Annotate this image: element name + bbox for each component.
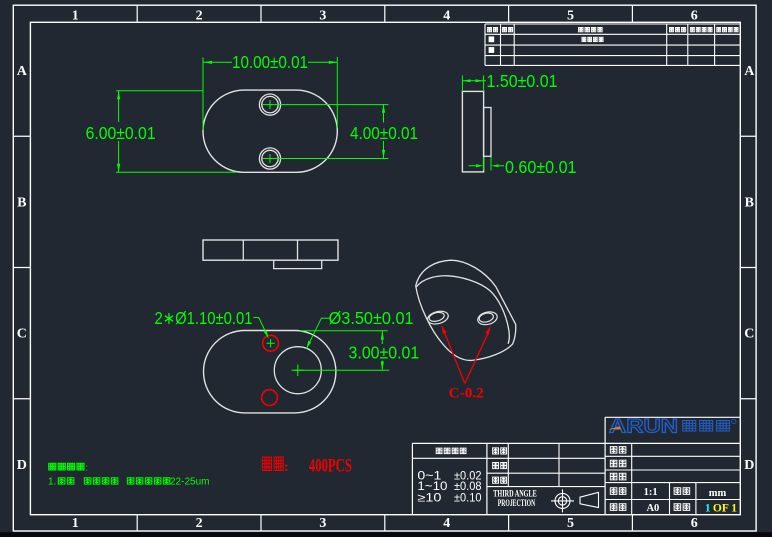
svg-text:C-0.2: C-0.2	[449, 385, 484, 401]
svg-text:1.: 1.	[48, 477, 56, 488]
svg-text:1: 1	[705, 503, 711, 515]
svg-text:6.00±0.01: 6.00±0.01	[86, 123, 156, 143]
svg-text:4: 4	[443, 8, 450, 23]
svg-text:Ø3.50±0.01: Ø3.50±0.01	[329, 308, 414, 328]
svg-text:D: D	[17, 458, 27, 473]
svg-text:mm: mm	[709, 488, 727, 499]
svg-text:A0: A0	[646, 503, 659, 514]
svg-text:2: 2	[196, 516, 203, 531]
svg-text:3: 3	[319, 516, 326, 531]
svg-text:1:1: 1:1	[644, 487, 658, 498]
svg-text:1~10: 1~10	[417, 481, 447, 493]
svg-text:PROJECTION: PROJECTION	[498, 498, 536, 508]
svg-text::: :	[284, 460, 289, 475]
svg-text:D: D	[744, 458, 754, 473]
svg-text:1: 1	[72, 516, 79, 531]
svg-text:2∗Ø1.10±0.01: 2∗Ø1.10±0.01	[155, 308, 253, 328]
svg-text::: :	[86, 463, 89, 473]
svg-text:B: B	[745, 196, 754, 211]
svg-text:4.00±0.01: 4.00±0.01	[350, 123, 418, 143]
svg-text:22-25um: 22-25um	[170, 477, 209, 488]
svg-text:THIRD ANGLE: THIRD ANGLE	[493, 488, 537, 498]
svg-text:3.00±0.01: 3.00±0.01	[349, 342, 420, 362]
svg-text:±0.08: ±0.08	[454, 481, 482, 493]
svg-text:ARUN: ARUN	[609, 416, 678, 438]
svg-text:6: 6	[691, 8, 698, 23]
svg-text:OF 1: OF 1	[713, 503, 737, 515]
svg-text:1: 1	[72, 8, 79, 23]
svg-text:400PCS: 400PCS	[309, 455, 352, 476]
svg-text:5: 5	[567, 516, 574, 531]
svg-text:6: 6	[691, 516, 698, 531]
svg-text:5: 5	[567, 8, 574, 23]
svg-text:≥10: ≥10	[417, 492, 441, 504]
svg-text:1.50±0.01: 1.50±0.01	[487, 71, 558, 91]
svg-text:±0.10: ±0.10	[454, 492, 482, 504]
svg-text:C: C	[744, 327, 754, 342]
svg-text:4: 4	[443, 516, 450, 531]
svg-text:A: A	[744, 64, 755, 79]
svg-text:3: 3	[319, 8, 326, 23]
svg-text:0.60±0.01: 0.60±0.01	[505, 157, 577, 177]
svg-text:2: 2	[196, 8, 203, 23]
svg-text:A: A	[17, 64, 28, 79]
svg-text:C: C	[17, 327, 27, 342]
svg-text:10.00±0.01: 10.00±0.01	[232, 52, 308, 72]
svg-text:B: B	[17, 196, 26, 211]
